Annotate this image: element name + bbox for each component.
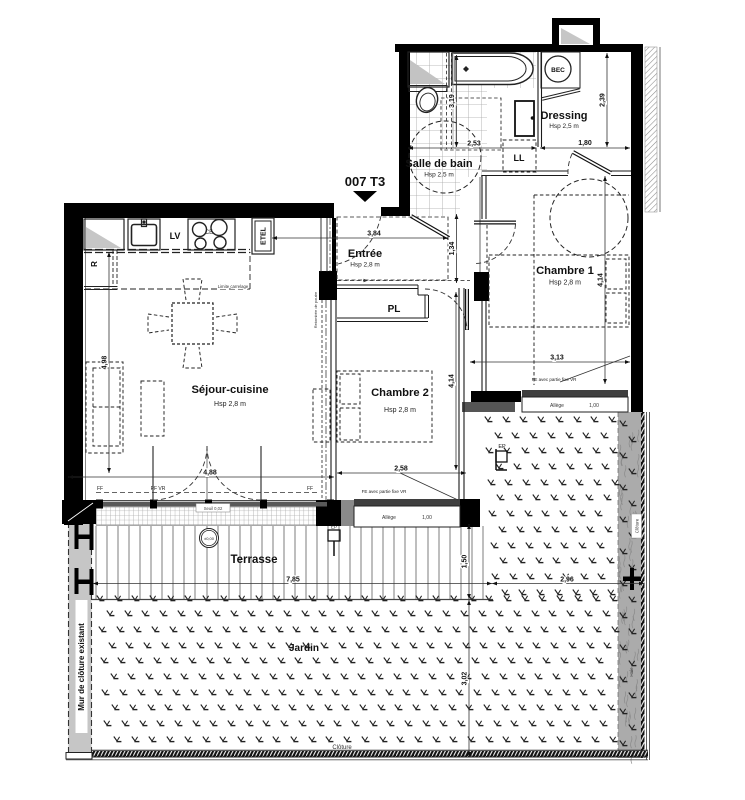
svg-text:EP: EP [331,525,337,530]
svg-text:Terrasse: Terrasse [230,554,277,566]
svg-text:Clôture: Clôture [332,745,352,751]
svg-text:FF: FF [307,486,313,492]
svg-text:ETEL: ETEL [261,226,268,245]
svg-text:7,85: 7,85 [286,577,300,584]
svg-text:4,98: 4,98 [102,356,109,370]
svg-text:FE avec partie fixe VR: FE avec partie fixe VR [362,489,408,494]
svg-text:PF VR: PF VR [151,486,166,492]
svg-text:3,13: 3,13 [550,355,564,362]
svg-text:Chambre 2: Chambre 2 [371,387,429,399]
svg-text:Salle de bain: Salle de bain [405,158,473,170]
svg-text:2,53: 2,53 [467,141,481,148]
svg-text:1,50: 1,50 [462,555,469,569]
svg-text:3,19: 3,19 [449,94,456,108]
svg-text:Entrée: Entrée [348,248,382,260]
svg-text:007 T3: 007 T3 [345,174,385,189]
svg-text:3,02: 3,02 [462,672,469,686]
svg-text:Seuil 0,02: Seuil 0,02 [204,506,223,511]
svg-text:Hsp 2,5 m: Hsp 2,5 m [424,172,454,179]
svg-text:Retombée de poutre: Retombée de poutre [313,291,318,328]
svg-text:EP: EP [498,444,506,450]
svg-text:Séjour-cuisine: Séjour-cuisine [191,384,268,396]
svg-text:Dressing: Dressing [540,110,587,122]
svg-text:2,96: 2,96 [560,577,574,584]
svg-text:3,84: 3,84 [367,231,381,238]
svg-text:2,39: 2,39 [600,93,607,107]
svg-text:FE avec partie fixe VR: FE avec partie fixe VR [532,377,578,382]
svg-text:LV: LV [170,231,181,241]
svg-text:Hsp 2,8 m: Hsp 2,8 m [214,401,246,408]
svg-text:1,80: 1,80 [578,140,592,147]
svg-text:2,58: 2,58 [394,466,408,473]
svg-text:R: R [90,261,99,267]
svg-text:Clôture: Clôture [635,518,640,533]
svg-text:1,00: 1,00 [422,515,432,521]
svg-text:4,14: 4,14 [449,374,456,388]
svg-text:4,88: 4,88 [203,470,217,477]
svg-text:±0,00: ±0,00 [204,536,215,541]
svg-text:FF: FF [97,486,103,492]
svg-text:Allège: Allège [382,515,396,521]
svg-text:1,00: 1,00 [589,403,599,409]
svg-text:LL: LL [514,153,525,163]
svg-text:Limite carrelage: Limite carrelage [218,284,249,289]
svg-text:Haie: Haie [629,667,634,677]
svg-text:Hsp 2,8 m: Hsp 2,8 m [549,280,581,287]
svg-text:Mur de clôture existant: Mur de clôture existant [77,623,86,711]
svg-text:Hsp 2,5 m: Hsp 2,5 m [549,123,579,130]
svg-text:Hsp 2,8 m: Hsp 2,8 m [384,407,416,414]
svg-text:4,14: 4,14 [598,273,605,287]
svg-text:1,34: 1,34 [449,242,456,256]
svg-text:Jardin: Jardin [289,643,319,654]
svg-text:Hsp 2,8 m: Hsp 2,8 m [350,262,380,269]
svg-text:PL: PL [388,304,401,315]
svg-text:Chambre 1: Chambre 1 [536,265,594,277]
svg-text:BEC: BEC [551,67,565,74]
svg-text:Allège: Allège [550,403,564,409]
